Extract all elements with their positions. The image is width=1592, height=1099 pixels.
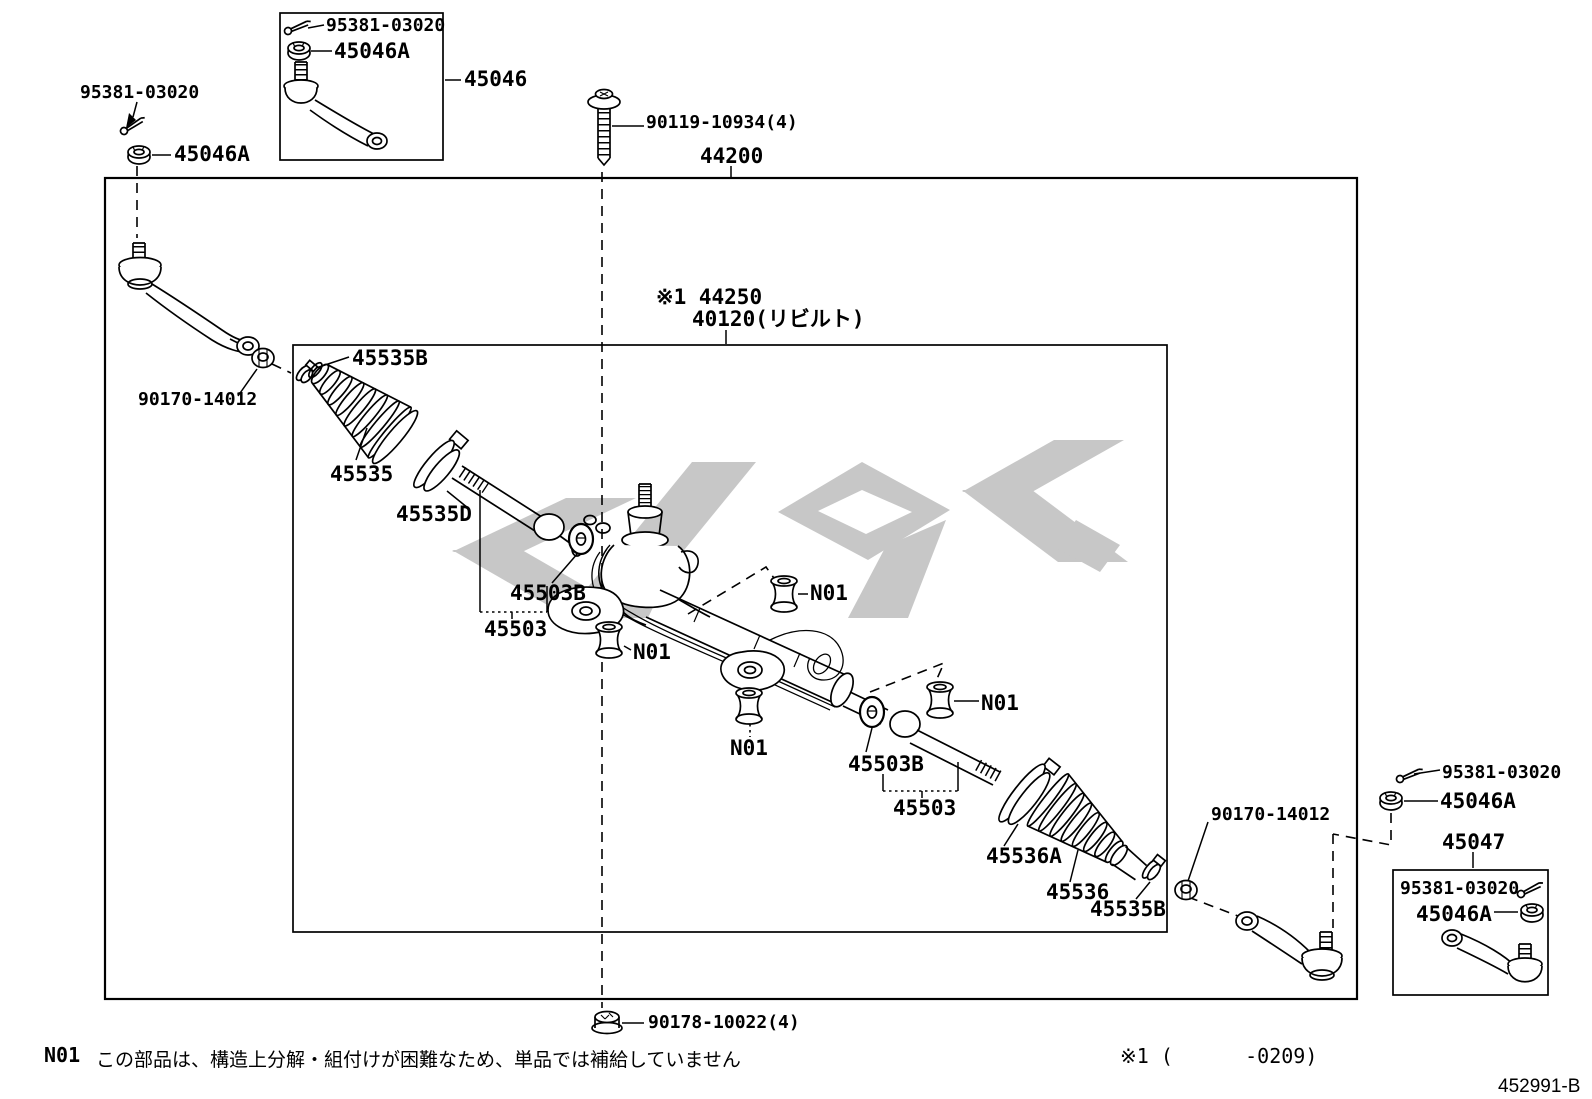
bushing-drawing xyxy=(596,622,622,658)
lock-nut-right-icon xyxy=(1175,881,1197,900)
gear-set-nut-icon xyxy=(592,1012,622,1034)
callout-gear-assembly-rebuilt: 40120(リビルト) xyxy=(692,309,865,330)
callout-inset-right-castle-nut: 45046A xyxy=(1416,904,1492,925)
callout-boot-clamp-left: 45535B xyxy=(352,348,428,369)
callout-inset-right-cotter-pin: 95381-03020 xyxy=(1400,880,1519,898)
callout-castle-nut-right: 45046A xyxy=(1440,791,1516,812)
cotter-pin-right-icon xyxy=(1396,768,1425,783)
note-code: N01 xyxy=(44,1045,80,1065)
callout-tie-rod-end-right: 45047 xyxy=(1442,832,1505,853)
inset-left-tie-rod-end-drawing xyxy=(284,62,387,149)
bushing-drawing xyxy=(927,682,953,718)
callout-mount-bolt: 90119-10934(4) xyxy=(646,114,798,132)
parts-diagram-page: 95381-03020 45046A 95381-03020 45046A 45… xyxy=(0,0,1592,1099)
claw-washer-right-drawing xyxy=(860,697,884,727)
callout-boot-clamp-right-large: 45536A xyxy=(986,846,1062,867)
inset-right-castle-nut-icon xyxy=(1521,904,1543,922)
inset-right-cotter-pin-icon xyxy=(1516,882,1545,899)
assembly-dashed-lines xyxy=(137,166,1391,1008)
callout-gear-assembly: 44200 xyxy=(700,146,763,167)
castle-nut-right-icon xyxy=(1380,792,1402,810)
callout-n01-left: N01 xyxy=(633,642,671,663)
castle-nut-icon xyxy=(128,146,150,164)
callout-claw-washer-right: 45503B xyxy=(848,754,924,775)
callout-castle-nut-top-left: 45046A xyxy=(174,144,250,165)
callout-boot-clip-left: 45535D xyxy=(396,504,472,525)
inset-right-tie-rod-end-drawing xyxy=(1442,930,1542,982)
bushing-drawing xyxy=(771,576,797,612)
callout-gear-set-nut: 90178-10022(4) xyxy=(648,1014,800,1032)
figure-number: 452991-B xyxy=(1498,1076,1580,1098)
callout-n01-center: N01 xyxy=(730,738,768,759)
callout-inner-tie-rod-left: 45503 xyxy=(484,619,547,640)
inset-left-castle-nut-icon xyxy=(288,42,310,60)
boot-clip-left-drawing xyxy=(409,429,473,499)
callout-inset-left-castle-nut: 45046A xyxy=(334,41,410,62)
callout-cotter-pin-right: 95381-03020 xyxy=(1442,764,1561,782)
callout-cotter-pin-top-left: 95381-03020 xyxy=(80,84,199,102)
callout-tie-rod-end-left: 45046 xyxy=(464,69,527,90)
callout-inner-tie-rod-right: 45503 xyxy=(893,798,956,819)
mount-bolt-drawing xyxy=(588,90,620,166)
claw-washer-left-drawing xyxy=(569,524,593,554)
tie-rod-end-left-drawing xyxy=(119,243,259,355)
callout-lock-nut-right: 90170-14012 xyxy=(1211,806,1330,824)
callout-boot-left: 45535 xyxy=(330,464,393,485)
callout-gear-assembly-note: ※1 44250 xyxy=(656,287,762,308)
lock-nut-left-icon xyxy=(252,349,274,368)
note-text: この部品は、構造上分解・組付けが困難なため、単品では補給していません xyxy=(96,1045,741,1072)
callout-boot-clamp-right-small: 45535B xyxy=(1090,899,1166,920)
callout-n01-top: N01 xyxy=(810,583,848,604)
boot-clamp-right-small-icon xyxy=(1140,854,1167,883)
callout-inset-left-cotter-pin: 95381-03020 xyxy=(326,17,445,35)
tie-rod-end-right-drawing xyxy=(1236,912,1342,980)
callout-n01-right: N01 xyxy=(981,693,1019,714)
callout-lock-nut-left: 90170-14012 xyxy=(138,391,257,409)
footnote-applicability: ※1 ( -0209) xyxy=(1120,1046,1317,1066)
callout-claw-washer-left: 45503B xyxy=(510,583,586,604)
bushing-drawing xyxy=(736,688,762,724)
